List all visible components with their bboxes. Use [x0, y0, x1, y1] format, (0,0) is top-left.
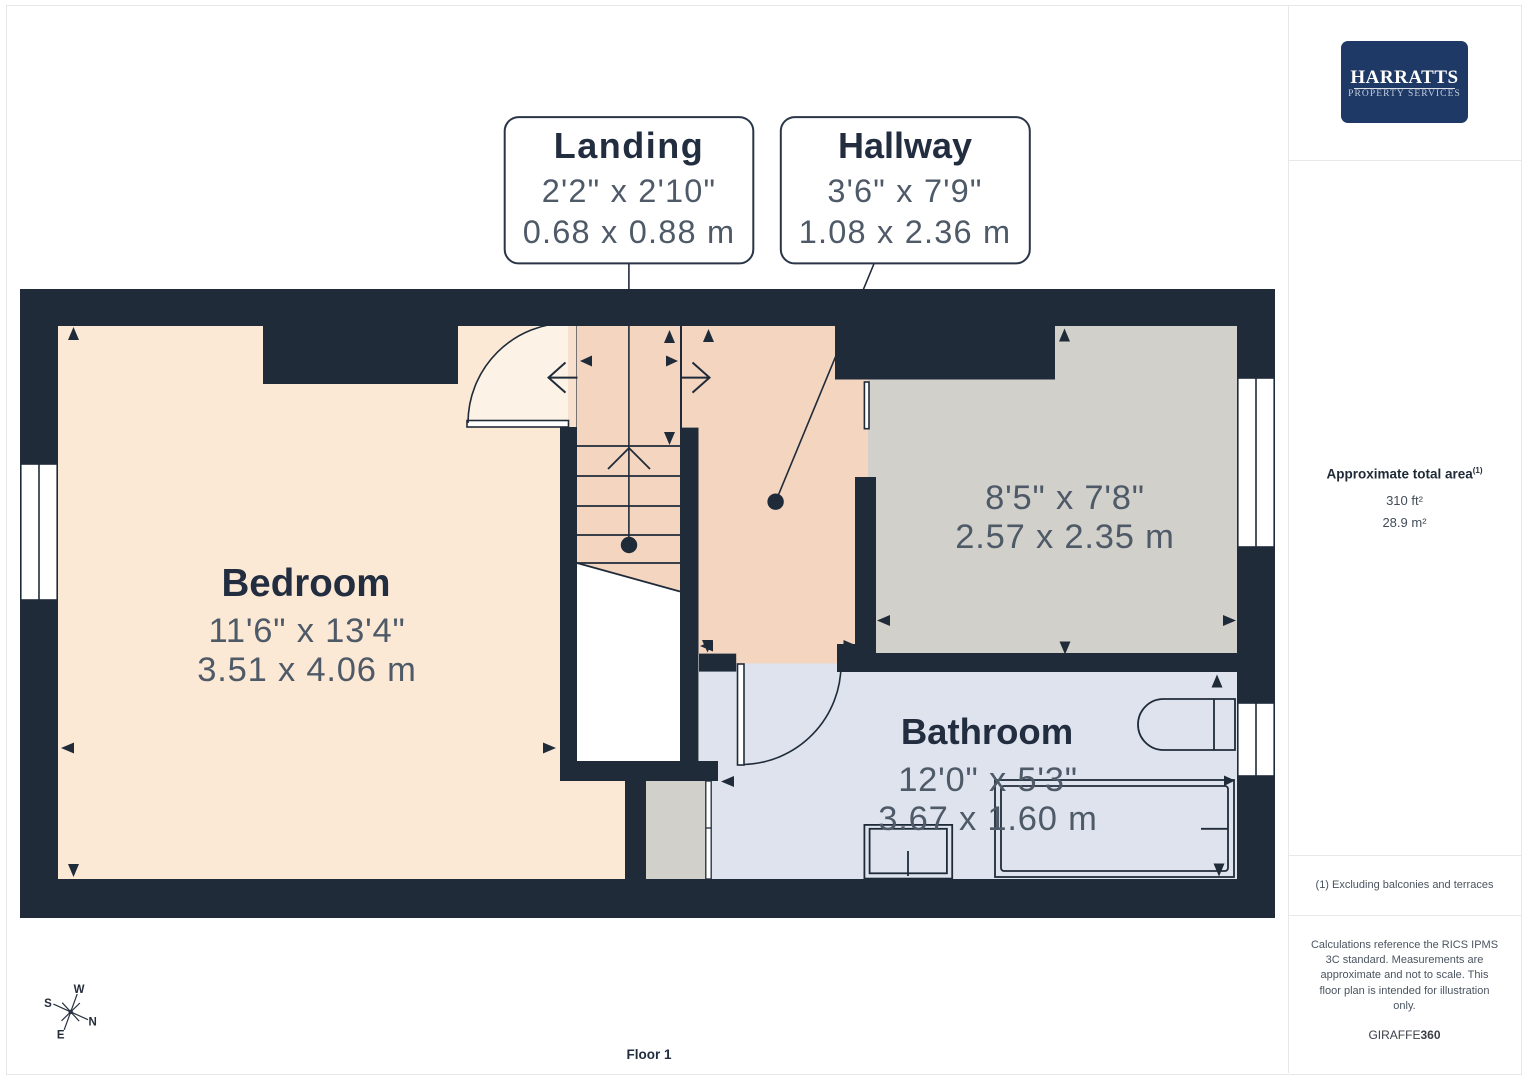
- svg-text:3.51 x 4.06 m: 3.51 x 4.06 m: [197, 651, 416, 689]
- svg-text:Bedroom: Bedroom: [222, 562, 391, 605]
- svg-text:11'6" x 13'4": 11'6" x 13'4": [208, 612, 405, 650]
- svg-text:Bathroom: Bathroom: [901, 711, 1073, 752]
- svg-text:1.08 x 2.36 m: 1.08 x 2.36 m: [799, 214, 1012, 250]
- svg-text:2'2" x 2'10": 2'2" x 2'10": [542, 173, 717, 209]
- svg-text:E: E: [57, 1030, 65, 1042]
- svg-text:Hallway: Hallway: [838, 125, 972, 166]
- svg-text:S: S: [44, 998, 52, 1010]
- svg-text:8'5" x 7'8": 8'5" x 7'8": [985, 479, 1145, 517]
- svg-text:0.68 x 0.88 m: 0.68 x 0.88 m: [523, 214, 736, 250]
- svg-text:3.67 x 1.60 m: 3.67 x 1.60 m: [878, 800, 1097, 838]
- svg-text:Floor 1: Floor 1: [626, 1047, 671, 1062]
- svg-text:2.57 x 2.35 m: 2.57 x 2.35 m: [955, 518, 1174, 556]
- svg-text:3'6" x 7'9": 3'6" x 7'9": [827, 173, 982, 209]
- svg-text:N: N: [89, 1017, 97, 1029]
- svg-text:W: W: [74, 984, 85, 996]
- svg-text:12'0" x 5'3": 12'0" x 5'3": [898, 761, 1078, 799]
- svg-text:Landing: Landing: [554, 125, 704, 166]
